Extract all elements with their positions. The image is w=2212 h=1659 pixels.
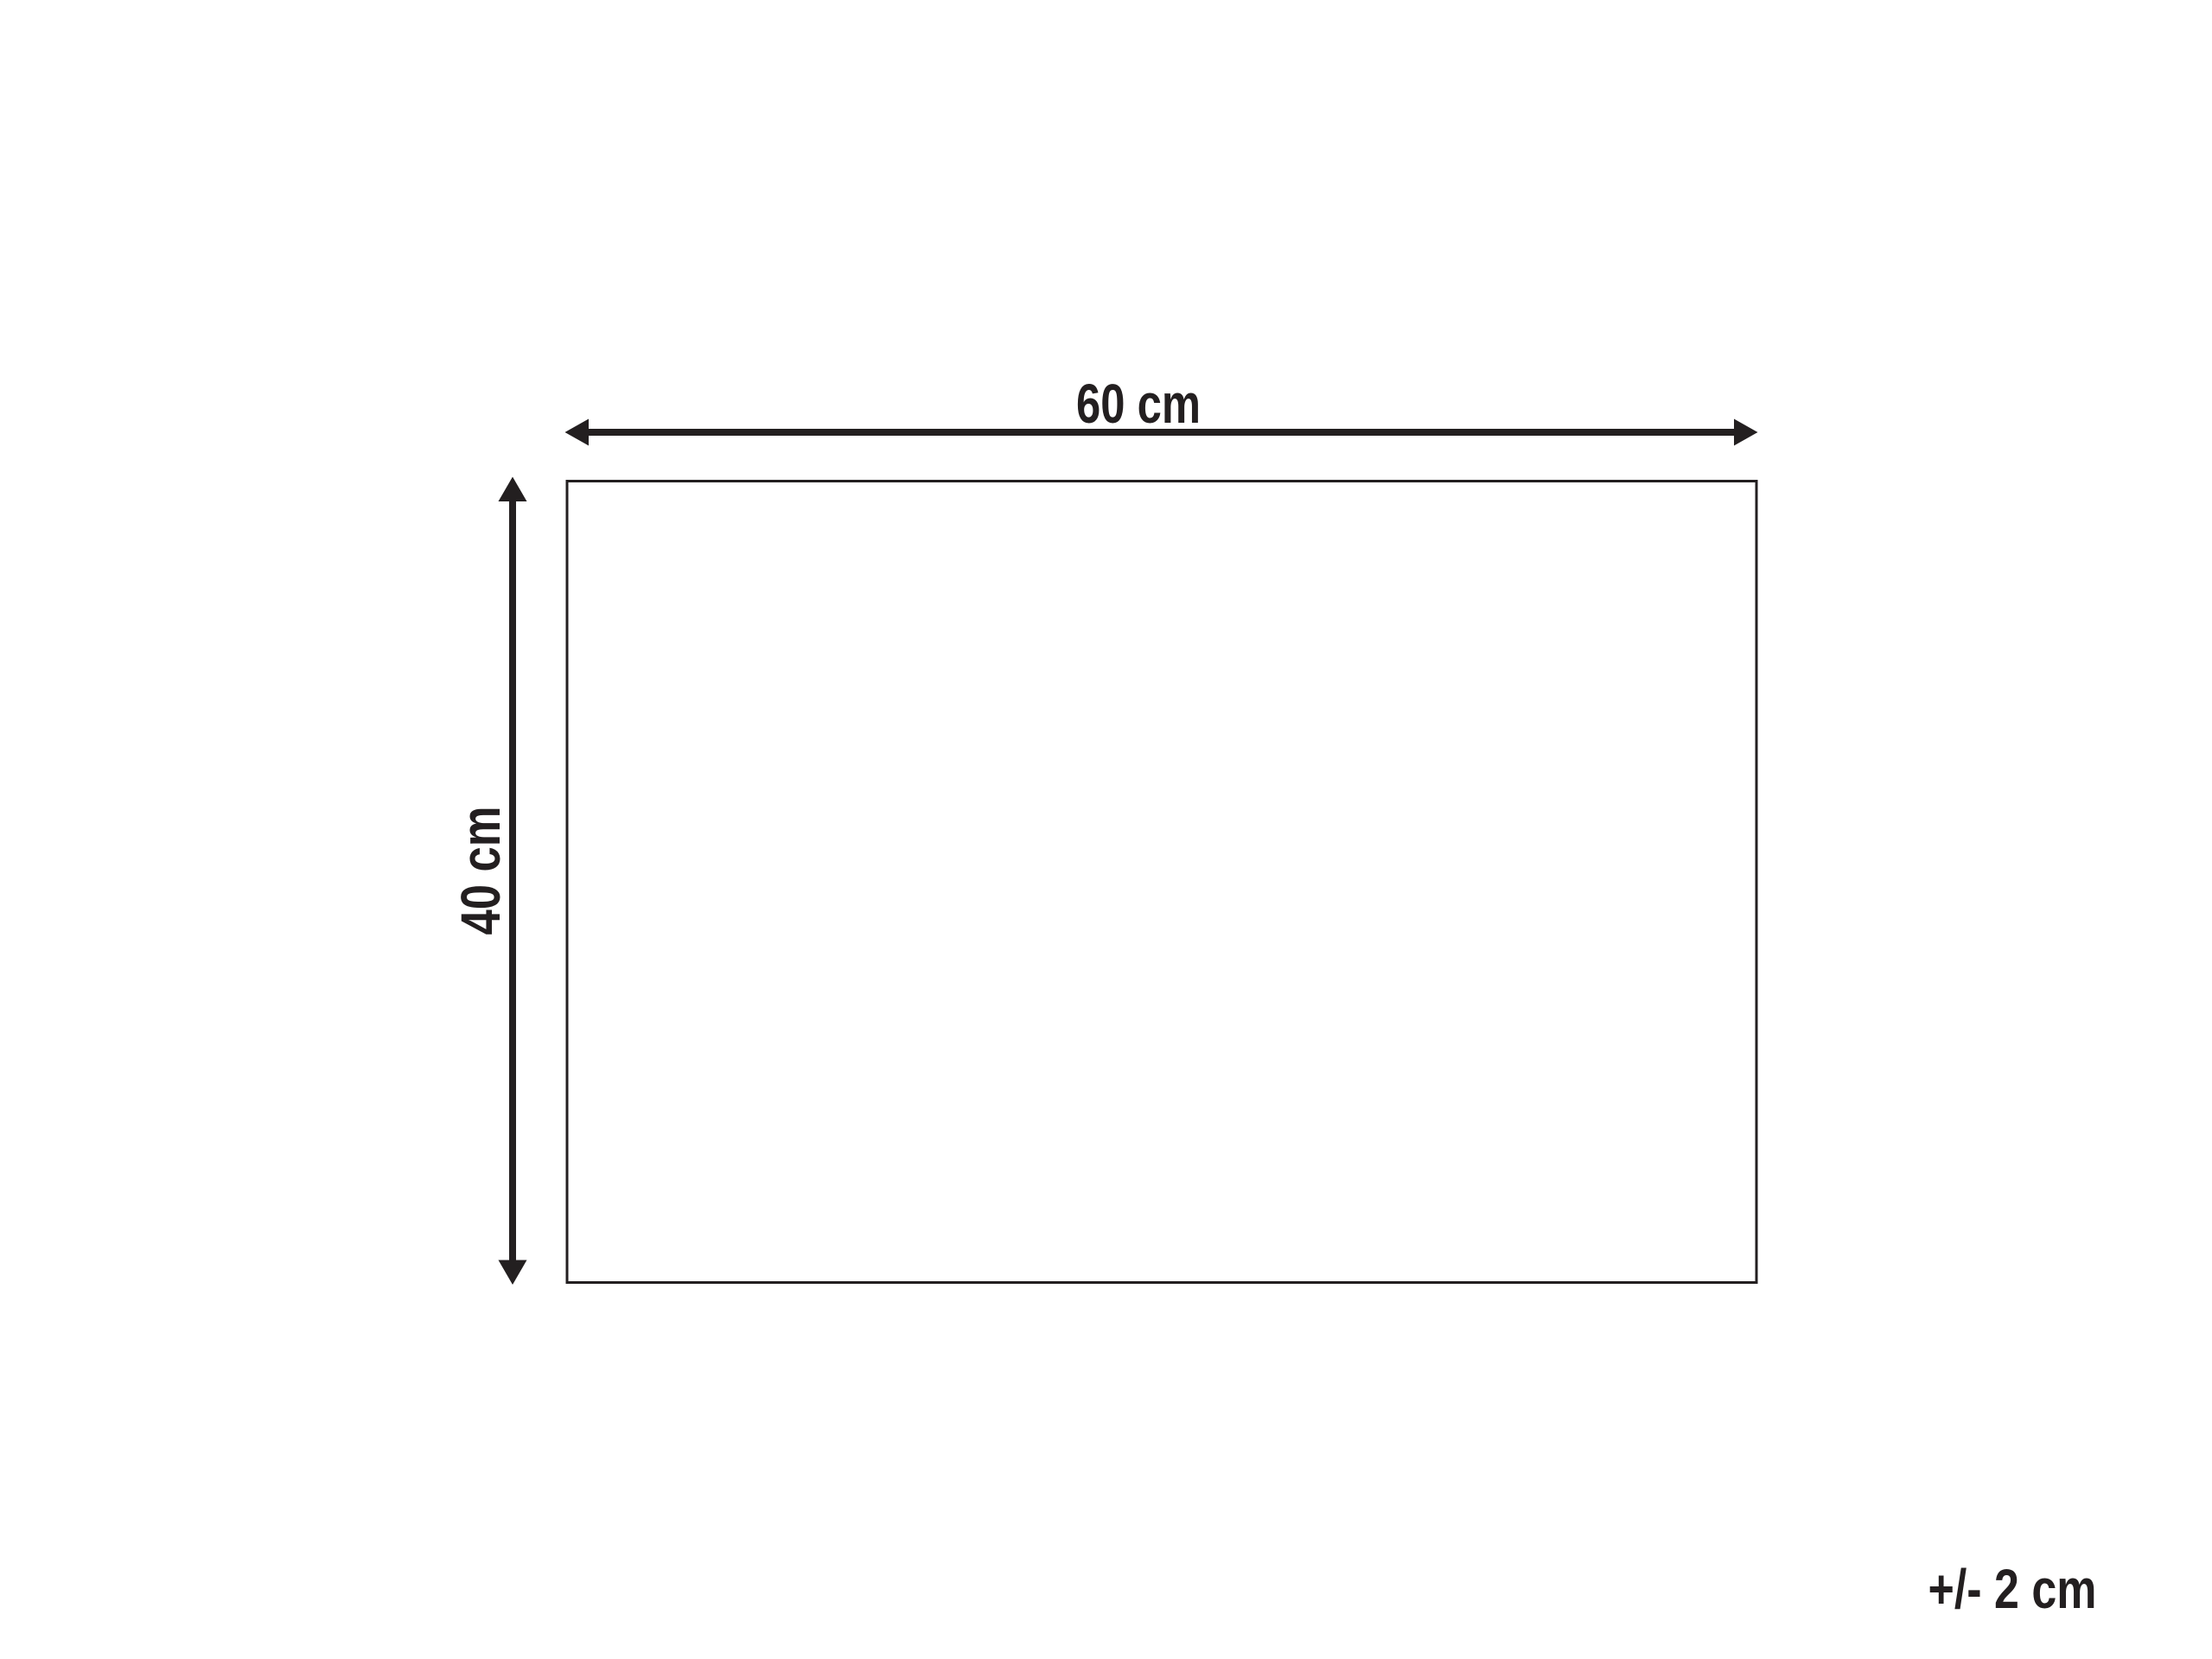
svg-text:60 cm: 60 cm (1076, 373, 1201, 435)
svg-text:+/- 2 cm: +/- 2 cm (1928, 1558, 2097, 1620)
svg-text:40 cm: 40 cm (449, 807, 512, 935)
